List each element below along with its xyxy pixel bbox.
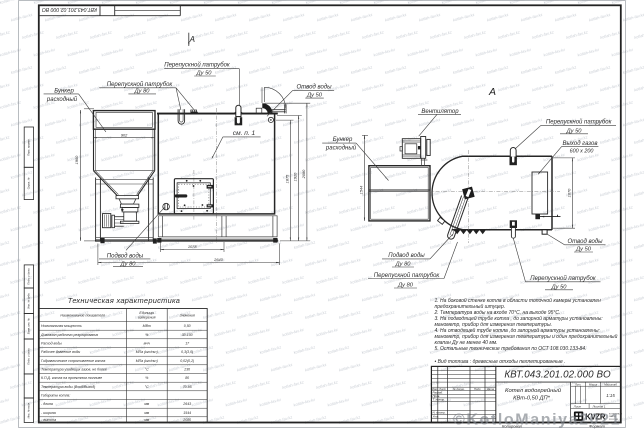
svg-text:kotlah-fav.kz: kotlah-fav.kz (304, 257, 327, 268)
svg-text:мм: мм (144, 411, 149, 415)
svg-text:kotlah-fav.kz: kotlah-fav.kz (350, 327, 373, 338)
svg-text:kotlah-fav.kz: kotlah-fav.kz (384, 379, 407, 390)
svg-text:kotlah-fav.kz: kotlah-fav.kz (543, 99, 566, 110)
svg-text:5. Остальные технические треб: 5. Остальные технические требования по О… (435, 346, 587, 352)
svg-text:kotlah-fav.kz: kotlah-fav.kz (236, 309, 259, 320)
svg-text:• Вид топлива : древесные от: • Вид топлива : древесные отходы пеллети… (435, 359, 566, 365)
svg-text:kotlah-fav.kz: kotlah-fav.kz (531, 134, 554, 145)
svg-text:1070: 1070 (566, 188, 571, 197)
svg-text:902: 902 (121, 132, 128, 137)
svg-text:kotlah-fav.kz: kotlah-fav.kz (0, 152, 21, 163)
svg-text:kotlah-fav.kz: kotlah-fav.kz (293, 397, 316, 408)
svg-text:kotlah-fav.kz: kotlah-fav.kz (237, 47, 260, 58)
svg-text:kotlah-fav.kz: kotlah-fav.kz (362, 29, 385, 40)
svg-text:1960: 1960 (74, 155, 79, 164)
svg-text:kotlah-fav.kz: kotlah-fav.kz (350, 222, 373, 233)
svg-text:kotlah-fav.kz: kotlah-fav.kz (248, 327, 271, 338)
svg-text:kotlah-fav.kz: kotlah-fav.kz (452, 117, 475, 128)
svg-text:Перепускной патрубок: Перепускной патрубок (530, 275, 597, 282)
svg-text:kotlah-fav.kz: kotlah-fav.kz (270, 309, 293, 320)
svg-text:kotlah-fav.kz: kotlah-fav.kz (395, 397, 418, 408)
svg-text:kotlah-fav.kz: kotlah-fav.kz (270, 257, 293, 268)
svg-text:kotlah-fav.kz: kotlah-fav.kz (497, 239, 520, 250)
svg-text:kotlah-fav.kz: kotlah-fav.kz (373, 152, 396, 163)
svg-text:kotlah-fav.kz: kotlah-fav.kz (203, 152, 226, 163)
svg-text:kotlah-fav.kz: kotlah-fav.kz (0, 134, 10, 145)
svg-text:°С: °С (145, 385, 149, 389)
svg-text:kotlah-fav.kz: kotlah-fav.kz (429, 134, 452, 145)
svg-text:kotlah-fav.kz: kotlah-fav.kz (599, 292, 622, 303)
svg-text:Ду 80: Ду 80 (395, 262, 412, 268)
svg-text:kotlah-fav.kz: kotlah-fav.kz (418, 117, 441, 128)
svg-text:kotlah-fav.kz: kotlah-fav.kz (169, 152, 192, 163)
svg-text:kotlah-fav.kz: kotlah-fav.kz (543, 152, 566, 163)
svg-text:kotlah-fav.kz: kotlah-fav.kz (610, 257, 633, 268)
svg-text:kotlah-fav.kz: kotlah-fav.kz (89, 344, 112, 355)
svg-text:kotlah-fav.kz: kotlah-fav.kz (202, 309, 225, 320)
svg-text:kotlah-fav.kz: kotlah-fav.kz (214, 274, 237, 285)
svg-text:kotlah-fav.kz: kotlah-fav.kz (78, 117, 101, 128)
svg-text:Утв.: Утв. (433, 415, 440, 419)
svg-text:kotlah-fav.kz: kotlah-fav.kz (101, 99, 124, 110)
svg-text:kotlah-fav.kz: kotlah-fav.kz (554, 12, 577, 23)
svg-text:2643: 2643 (182, 402, 191, 406)
svg-text:kotlah-fav.kz: kotlah-fav.kz (0, 397, 10, 408)
svg-text:kotlah-fav.kz: kotlah-fav.kz (338, 257, 361, 268)
svg-text:kotlah-fav.kz: kotlah-fav.kz (0, 414, 21, 425)
svg-text:kotlah-fav.kz: kotlah-fav.kz (599, 82, 622, 93)
svg-text:kotlah-fav.kz: kotlah-fav.kz (486, 64, 509, 75)
svg-text:kotlah-fav.kz: kotlah-fav.kz (157, 397, 180, 408)
svg-text:Подп.: Подп. (474, 387, 481, 391)
svg-text:kotlah-fav.kz: kotlah-fav.kz (304, 362, 327, 373)
svg-text:4. На отводящей трубе котла ,: 4. На отводящей трубе котла ,до запорной… (435, 327, 601, 334)
svg-text:1. На боковой стенке котла в: 1. На боковой стенке котла в области топ… (435, 297, 602, 304)
svg-text:kotlah-fav.kz: kotlah-fav.kz (89, 397, 112, 408)
svg-text:1875: 1875 (284, 174, 289, 183)
svg-text:2080: 2080 (301, 169, 306, 179)
svg-text:kotlah-fav.kz: kotlah-fav.kz (259, 344, 282, 355)
svg-text:kotlah-fav.kz: kotlah-fav.kz (531, 82, 554, 93)
svg-text:kotlah-fav.kz: kotlah-fav.kz (0, 187, 10, 198)
svg-text:Листов 1: Листов 1 (592, 404, 606, 408)
svg-text:kotlah-fav.kz: kotlah-fav.kz (0, 204, 21, 215)
svg-text:kotlah-fav.kz: kotlah-fav.kz (441, 47, 464, 58)
svg-text:%: % (145, 333, 148, 337)
svg-text:kotlah-fav.kz: kotlah-fav.kz (339, 204, 362, 215)
svg-text:Отвод воды: Отвод воды (567, 239, 603, 245)
svg-text:kotlah-fav.kz: kotlah-fav.kz (248, 274, 271, 285)
svg-text:kotlah-fav.kz: kotlah-fav.kz (305, 204, 328, 215)
svg-text:kotlah-fav.kz: kotlah-fav.kz (634, 29, 644, 40)
svg-text:kotlah-fav.kz: kotlah-fav.kz (169, 99, 192, 110)
svg-text:kotlah-fav.kz: kotlah-fav.kz (599, 134, 622, 145)
svg-text:kotlah-fav.kz: kotlah-fav.kz (520, 117, 543, 128)
svg-text:kotlah-fav.kz: kotlah-fav.kz (55, 239, 78, 250)
svg-text:kotlah-fav.kz: kotlah-fav.kz (463, 134, 486, 145)
svg-text:kotlah-fav.kz: kotlah-fav.kz (271, 47, 294, 58)
svg-text:kotlah-fav.kz: kotlah-fav.kz (158, 29, 181, 40)
svg-text:kotlah-fav.kz: kotlah-fav.kz (373, 204, 396, 215)
svg-text:kotlah-fav.kz: kotlah-fav.kz (32, 257, 55, 268)
svg-text:kotlah-fav.kz: kotlah-fav.kz (146, 222, 169, 233)
svg-text:kotlah-fav.kz: kotlah-fav.kz (384, 169, 407, 180)
svg-text:kotlah-fav.kz: kotlah-fav.kz (633, 292, 644, 303)
svg-text:Значения: Значения (180, 314, 195, 318)
svg-text:kotlah-fav.kz: kotlah-fav.kz (248, 222, 271, 233)
svg-text:Гидравлическое сопротивление к: Гидравлическое сопротивление котла (41, 359, 105, 363)
svg-text:kotlah-fav.kz: kotlah-fav.kz (509, 47, 532, 58)
svg-text:Ду 80: Ду 80 (397, 282, 414, 288)
svg-text:kotlah-fav.kz: kotlah-fav.kz (101, 47, 124, 58)
svg-text:80: 80 (185, 376, 189, 380)
svg-text:kotlah-fav.kz: kotlah-fav.kz (611, 152, 634, 163)
svg-text:kotlah-fav.kz: kotlah-fav.kz (0, 29, 10, 40)
svg-text:Инв. № дубл.: Инв. № дубл. (27, 292, 31, 308)
svg-text:kotlah-fav.kz: kotlah-fav.kz (361, 292, 384, 303)
svg-text:kotlah-fav.kz: kotlah-fav.kz (55, 134, 78, 145)
svg-text:kotlah-fav.kz: kotlah-fav.kz (10, 12, 33, 23)
svg-text:kotlah-fav.kz: kotlah-fav.kz (463, 397, 486, 408)
svg-text:kotlah-fav.kz: kotlah-fav.kz (225, 397, 248, 408)
svg-text:kotlah-fav.kz: kotlah-fav.kz (168, 257, 191, 268)
svg-text:kotlah-fav.kz: kotlah-fav.kz (350, 64, 373, 75)
svg-text:kotlah-fav.kz: kotlah-fav.kz (146, 117, 169, 128)
svg-text:kotlah-fav.kz: kotlah-fav.kz (248, 117, 271, 128)
svg-text:kotlah-fav.kz: kotlah-fav.kz (180, 222, 203, 233)
svg-text:kotlah-fav.kz: kotlah-fav.kz (361, 397, 384, 408)
svg-text:КВТ.043.201.02.000 ВО: КВТ.043.201.02.000 ВО (42, 6, 97, 12)
svg-text:kotlah-fav.kz: kotlah-fav.kz (112, 327, 135, 338)
svg-text:kotlah-fav.kz: kotlah-fav.kz (384, 117, 407, 128)
svg-text:kotlah-fav.kz: kotlah-fav.kz (191, 397, 214, 408)
svg-text:kotlah-fav.kz: kotlah-fav.kz (395, 239, 418, 250)
svg-text:kotlah-fav.kz: kotlah-fav.kz (418, 12, 441, 23)
svg-text:kotlah-fav.kz: kotlah-fav.kz (66, 257, 89, 268)
svg-text:kotlah-fav.kz: kotlah-fav.kz (600, 29, 623, 40)
svg-text:kotlah-fav.kz: kotlah-fav.kz (78, 64, 101, 75)
svg-text:kotlah-fav.kz: kotlah-fav.kz (305, 47, 328, 58)
svg-text:kotlah-fav.kz: kotlah-fav.kz (21, 187, 44, 198)
svg-text:kotlah-fav.kz: kotlah-fav.kz (497, 187, 520, 198)
svg-text:kotlah-fav.kz: kotlah-fav.kz (474, 257, 497, 268)
svg-text:kotlah-fav.kz: kotlah-fav.kz (486, 117, 509, 128)
svg-text:Диапазон рабочего регулировани: Диапазон рабочего регулирования (40, 333, 98, 337)
svg-text:kotlah-fav.kz: kotlah-fav.kz (395, 187, 418, 198)
svg-text:kotlah-fav.kz: kotlah-fav.kz (78, 222, 101, 233)
svg-text:kotlah-fav.kz: kotlah-fav.kz (146, 327, 169, 338)
svg-text:kotlah-fav.kz: kotlah-fav.kz (361, 82, 384, 93)
svg-text:kotlah-fav.kz: kotlah-fav.kz (33, 204, 56, 215)
svg-text:Перепускной патрубок: Перепускной патрубок (107, 81, 174, 88)
svg-text:kotlah-fav.kz: kotlah-fav.kz (248, 64, 271, 75)
svg-text:kotlah-fav.kz: kotlah-fav.kz (282, 274, 305, 285)
svg-text:kotlah-fav.kz: kotlah-fav.kz (225, 344, 248, 355)
svg-text:kotlah-fav.kz: kotlah-fav.kz (577, 47, 600, 58)
svg-text:kotlah-fav.kz: kotlah-fav.kz (497, 82, 520, 93)
svg-text:kotlah-fav.kz: kotlah-fav.kz (225, 187, 248, 198)
svg-text:kotlah-fav.kz: kotlah-fav.kz (44, 117, 67, 128)
svg-text:Справ. №: Справ. № (27, 177, 31, 189)
svg-text:- высота: - высота (41, 418, 56, 422)
svg-text:kotlah-fav.kz: kotlah-fav.kz (576, 257, 599, 268)
svg-text:kotlah-fav.kz: kotlah-fav.kz (32, 309, 55, 320)
svg-text:kotlah-fav.kz: kotlah-fav.kz (395, 82, 418, 93)
svg-text:Перепускной патрубок: Перепускной патрубок (374, 272, 441, 279)
svg-text:kotlah-fav.kz: kotlah-fav.kz (135, 99, 158, 110)
svg-text:kotlah-fav.kz: kotlah-fav.kz (0, 82, 10, 93)
svg-text:kotlah-fav.kz: kotlah-fav.kz (384, 64, 407, 75)
svg-text:kotlah-fav.kz: kotlah-fav.kz (0, 292, 10, 303)
svg-text:2080: 2080 (182, 418, 191, 422)
svg-text:kotlah-fav.kz: kotlah-fav.kz (226, 29, 249, 40)
svg-text:Лист: Лист (573, 404, 582, 408)
svg-text:kotlah-fav.kz: kotlah-fav.kz (372, 309, 395, 320)
svg-text:kotlah-fav.kz: kotlah-fav.kz (44, 64, 67, 75)
svg-text:kotlah-fav.kz: kotlah-fav.kz (633, 344, 644, 355)
svg-text:kotlah-fav.kz: kotlah-fav.kz (316, 12, 339, 23)
svg-text:kotlah-fav.kz: kotlah-fav.kz (282, 222, 305, 233)
svg-text:kotlah-fav.kz: kotlah-fav.kz (10, 117, 33, 128)
svg-text:Масса: Масса (589, 382, 597, 386)
svg-text:kotlah-fav.kz: kotlah-fav.kz (157, 134, 180, 145)
svg-text:мм: мм (144, 402, 149, 406)
svg-text:kotlah-fav.kz: kotlah-fav.kz (180, 274, 203, 285)
svg-text:kotlah-fav.kz: kotlah-fav.kz (554, 64, 577, 75)
svg-text:kotlah-fav.kz: kotlah-fav.kz (169, 47, 192, 58)
svg-text:kotlah-fav.kz: kotlah-fav.kz (304, 309, 327, 320)
svg-text:kotlah-fav.kz: kotlah-fav.kz (520, 222, 543, 233)
svg-text:kotlah-fav.kz: kotlah-fav.kz (520, 64, 543, 75)
svg-text:kotlah-fav.kz: kotlah-fav.kz (407, 204, 430, 215)
svg-text:kotlah-fav.kz: kotlah-fav.kz (21, 134, 44, 145)
svg-text:Номинальная мощность: Номинальная мощность (41, 324, 82, 328)
svg-text:kotlah-fav.kz: kotlah-fav.kz (339, 47, 362, 58)
svg-text:kotlah-fav.kz: kotlah-fav.kz (248, 379, 271, 390)
svg-text:kotlah-fav.kz: kotlah-fav.kz (112, 379, 135, 390)
svg-text:kotlah-fav.kz: kotlah-fav.kz (248, 169, 271, 180)
svg-text:kotlah-fav.kz: kotlah-fav.kz (305, 152, 328, 163)
svg-text:kotlah-fav.kz: kotlah-fav.kz (611, 204, 634, 215)
svg-text:kotlah-fav.kz: kotlah-fav.kz (531, 239, 554, 250)
svg-text:Дата: Дата (486, 387, 495, 391)
svg-text:kotlah-fav.kz: kotlah-fav.kz (22, 29, 45, 40)
svg-text:kotlah-fav.kz: kotlah-fav.kz (464, 29, 487, 40)
svg-text:kotlah-fav.kz: kotlah-fav.kz (146, 274, 169, 285)
svg-text:kotlah-fav.kz: kotlah-fav.kz (429, 82, 452, 93)
svg-text:kotlah-fav.kz: kotlah-fav.kz (259, 134, 282, 145)
svg-text:Котел водогрейный: Котел водогрейный (505, 387, 562, 394)
svg-text:kotlah-fav.kz: kotlah-fav.kz (10, 64, 33, 75)
svg-text:kotlah-fav.kz: kotlah-fav.kz (486, 12, 509, 23)
svg-text:kotlah-fav.kz: kotlah-fav.kz (452, 274, 475, 285)
svg-text:расходный: расходный (325, 145, 357, 152)
svg-text:kotlah-fav.kz: kotlah-fav.kz (350, 379, 373, 390)
svg-text:kotlah-fav.kz: kotlah-fav.kz (90, 29, 113, 40)
svg-text:kotlah-fav.kz: kotlah-fav.kz (633, 82, 644, 93)
svg-text:kotlah-fav.kz: kotlah-fav.kz (395, 134, 418, 145)
svg-text:kotlah-fav.kz: kotlah-fav.kz (214, 169, 237, 180)
svg-text:kotlah-fav.kz: kotlah-fav.kz (577, 99, 600, 110)
svg-text:kotlah-fav.kz: kotlah-fav.kz (588, 64, 611, 75)
svg-text:kotlah-fav.kz: kotlah-fav.kz (486, 169, 509, 180)
svg-text:kotlah-fav.kz: kotlah-fav.kz (406, 362, 429, 373)
svg-text:3. На подводящей трубе котла: 3. На подводящей трубе котла , до запорн… (435, 315, 604, 322)
svg-text:kotlah-fav.kz: kotlah-fav.kz (293, 292, 316, 303)
svg-text:м³/ч: м³/ч (144, 341, 151, 345)
svg-text:измерения: измерения (138, 316, 156, 320)
svg-text:kotlah-fav.kz: kotlah-fav.kz (225, 292, 248, 303)
svg-text:0,02(0,2): 0,02(0,2) (180, 359, 194, 363)
svg-text:kotlah-fav.kz: kotlah-fav.kz (475, 47, 498, 58)
svg-text:Температура воды (Вход/Выход): Температура воды (Вход/Выход) (41, 385, 95, 389)
svg-text:Инв. № подл.: Инв. № подл. (27, 402, 31, 418)
svg-text:Ду 50: Ду 50 (551, 284, 568, 290)
svg-text:Перв. примен.: Перв. примен. (27, 138, 31, 156)
svg-text:kotlah-fav.kz: kotlah-fav.kz (112, 64, 135, 75)
svg-text:kotlah-fav.kz: kotlah-fav.kz (328, 29, 351, 40)
svg-text:kotlah-fav.kz: kotlah-fav.kz (21, 239, 44, 250)
svg-text:kotlah-fav.kz: kotlah-fav.kz (430, 29, 453, 40)
svg-text:kotlah-fav.kz: kotlah-fav.kz (225, 82, 248, 93)
svg-text:Подп. и дата: Подп. и дата (27, 268, 31, 285)
svg-text:kotlah-fav.kz: kotlah-fav.kz (350, 117, 373, 128)
svg-text:kotlah-fav.kz: kotlah-fav.kz (633, 239, 644, 250)
svg-text:kotlah-fav.kz: kotlah-fav.kz (44, 12, 67, 23)
svg-text:kotlah-fav.kz: kotlah-fav.kz (316, 274, 339, 285)
svg-text:kotlah-fav.kz: kotlah-fav.kz (0, 362, 21, 373)
svg-text:0,3(3,0): 0,3(3,0) (181, 350, 193, 354)
svg-text:Подп. и дата: Подп. и дата (27, 348, 31, 365)
svg-text:расходный: расходный (46, 96, 78, 103)
svg-text:kotlah-fav.kz: kotlah-fav.kz (327, 187, 350, 198)
svg-text:Т. контр.: Т. контр. (433, 398, 446, 402)
svg-text:см. п. 1: см. п. 1 (233, 130, 256, 137)
svg-text:70-95: 70-95 (183, 385, 192, 389)
svg-text:мм: мм (144, 418, 149, 422)
svg-text:kotlah-fav.kz: kotlah-fav.kz (270, 362, 293, 373)
svg-text:kotlah-fav.kz: kotlah-fav.kz (509, 204, 532, 215)
svg-text:kotlah-fav.kz: kotlah-fav.kz (350, 12, 373, 23)
svg-text:kotlah-fav.kz: kotlah-fav.kz (316, 379, 339, 390)
svg-text:kotlah-fav.kz: kotlah-fav.kz (338, 309, 361, 320)
svg-text:kotlah-fav.kz: kotlah-fav.kz (588, 222, 611, 233)
svg-text:kotlah-fav.kz: kotlah-fav.kz (33, 47, 56, 58)
svg-text:kotlah-fav.kz: kotlah-fav.kz (588, 12, 611, 23)
svg-text:kotlah-fav.kz: kotlah-fav.kz (214, 12, 237, 23)
svg-text:0,50: 0,50 (184, 324, 191, 328)
svg-text:kotlah-fav.kz: kotlah-fav.kz (259, 187, 282, 198)
svg-text:Ду 50: Ду 50 (306, 93, 323, 99)
svg-text:kotlah-fav.kz: kotlah-fav.kz (44, 169, 67, 180)
svg-text:kotlah-fav.kz: kotlah-fav.kz (33, 152, 56, 163)
svg-text:Лит.: Лит. (574, 382, 582, 386)
svg-text:kotlah-fav.kz: kotlah-fav.kz (610, 309, 633, 320)
svg-text:kotlah-fav.kz: kotlah-fav.kz (0, 257, 21, 268)
svg-text:kotlah-fav.kz: kotlah-fav.kz (260, 29, 283, 40)
svg-text:kotlah-fav.kz: kotlah-fav.kz (316, 327, 339, 338)
svg-text:kotlah-fav.kz: kotlah-fav.kz (384, 327, 407, 338)
svg-text:kotlah-fav.kz: kotlah-fav.kz (452, 169, 475, 180)
svg-text:kotlah-fav.kz: kotlah-fav.kz (293, 344, 316, 355)
svg-text:kotlah-fav.kz: kotlah-fav.kz (305, 99, 328, 110)
svg-text:kotlah-fav.kz: kotlah-fav.kz (214, 117, 237, 128)
svg-text:kotlah-fav.kz: kotlah-fav.kz (282, 117, 305, 128)
svg-text:600 х 200: 600 х 200 (570, 149, 594, 155)
svg-text:kotlah-fav.kz: kotlah-fav.kz (440, 257, 463, 268)
svg-text:kotlah-fav.kz: kotlah-fav.kz (361, 344, 384, 355)
svg-text:kotlah-fav.kz: kotlah-fav.kz (542, 257, 565, 268)
svg-text:kotlah-fav.kz: kotlah-fav.kz (259, 82, 282, 93)
svg-text:манометр, прибор для измерения: манометр, прибор для измерения температу… (435, 333, 618, 340)
svg-text:К.П.Д. котла на проектном топл: К.П.Д. котла на проектном топливе (41, 376, 102, 380)
svg-text:МПа (кгс/см²): МПа (кгс/см²) (136, 350, 158, 354)
svg-text:kotlah-fav.kz: kotlah-fav.kz (327, 292, 350, 303)
svg-text:kotlah-fav.kz: kotlah-fav.kz (146, 379, 169, 390)
svg-text:kotlah-fav.kz: kotlah-fav.kz (112, 117, 135, 128)
svg-text:- длина: - длина (41, 402, 53, 406)
svg-text:°С: °С (145, 367, 149, 371)
svg-text:kotlah-fav.kz: kotlah-fav.kz (10, 379, 33, 390)
svg-text:kotlah-fav.kz: kotlah-fav.kz (316, 169, 339, 180)
svg-text:kotlah-fav.kz: kotlah-fav.kz (475, 99, 498, 110)
svg-text:kotlah-fav.kz: kotlah-fav.kz (55, 187, 78, 198)
svg-text:Масштаб: Масштаб (604, 382, 617, 386)
svg-text:kotlah-fav.kz: kotlah-fav.kz (577, 204, 600, 215)
svg-text:kotlah-fav.kz: kotlah-fav.kz (566, 29, 589, 40)
svg-text:kotlah-fav.kz: kotlah-fav.kz (191, 344, 214, 355)
svg-text:Расход воды: Расход воды (41, 341, 62, 345)
svg-text:kotlah-fav.kz: kotlah-fav.kz (361, 239, 384, 250)
svg-text:kotlah-fav.kz: kotlah-fav.kz (475, 152, 498, 163)
svg-text:kotlah-fav.kz: kotlah-fav.kz (622, 379, 644, 390)
svg-text:kotlah-fav.kz: kotlah-fav.kz (112, 169, 135, 180)
svg-text:kotlah-fav.kz: kotlah-fav.kz (55, 397, 78, 408)
svg-text:Температура уходящих газов, не: Температура уходящих газов, не более (41, 367, 107, 371)
svg-text:1544: 1544 (183, 411, 191, 415)
svg-text:kotlah-fav.kz: kotlah-fav.kz (327, 397, 350, 408)
svg-text:kotlah-fav.kz: kotlah-fav.kz (531, 187, 554, 198)
svg-text:kotlah-fav.kz: kotlah-fav.kz (135, 47, 158, 58)
svg-text:kotlah-fav.kz: kotlah-fav.kz (236, 257, 259, 268)
svg-text:kotlah-fav.kz: kotlah-fav.kz (384, 222, 407, 233)
svg-text:kotlah-fav.kz: kotlah-fav.kz (475, 204, 498, 215)
svg-text:Перепускной патрубок: Перепускной патрубок (164, 61, 231, 68)
svg-text:kotlah-fav.kz: kotlah-fav.kz (486, 274, 509, 285)
svg-text:kotlah-fav.kz: kotlah-fav.kz (191, 292, 214, 303)
svg-text:kotlah-fav.kz: kotlah-fav.kz (633, 397, 644, 408)
svg-text:kotlah-fav.kz: kotlah-fav.kz (21, 82, 44, 93)
svg-text:- ширина: - ширина (41, 411, 56, 415)
svg-text:№ докум.: № докум. (453, 387, 465, 391)
svg-text:kotlah-fav.kz: kotlah-fav.kz (78, 12, 101, 23)
svg-text:kotlah-fav.kz: kotlah-fav.kz (316, 64, 339, 75)
svg-text:kotlah-fav.kz: kotlah-fav.kz (316, 117, 339, 128)
svg-text:kotlah-fav.kz: kotlah-fav.kz (282, 327, 305, 338)
svg-text:kotlah-fav.kz: kotlah-fav.kz (441, 204, 464, 215)
svg-text:Бункер: Бункер (333, 137, 353, 143)
svg-text:kotlah-fav.kz: kotlah-fav.kz (611, 99, 634, 110)
svg-text:kotlah-fav.kz: kotlah-fav.kz (395, 292, 418, 303)
svg-text:2643: 2643 (213, 257, 223, 262)
svg-text:17: 17 (185, 341, 190, 345)
svg-text:kotlah-fav.kz: kotlah-fav.kz (0, 99, 21, 110)
svg-text:kotlah-fav.kz: kotlah-fav.kz (543, 204, 566, 215)
svg-text:kotlah-fav.kz: kotlah-fav.kz (611, 47, 634, 58)
svg-text:kotlah-fav.kz: kotlah-fav.kz (293, 134, 316, 145)
svg-text:Габариты котла:: Габариты котла: (41, 393, 70, 397)
svg-text:kotlah-fav.kz: kotlah-fav.kz (191, 82, 214, 93)
